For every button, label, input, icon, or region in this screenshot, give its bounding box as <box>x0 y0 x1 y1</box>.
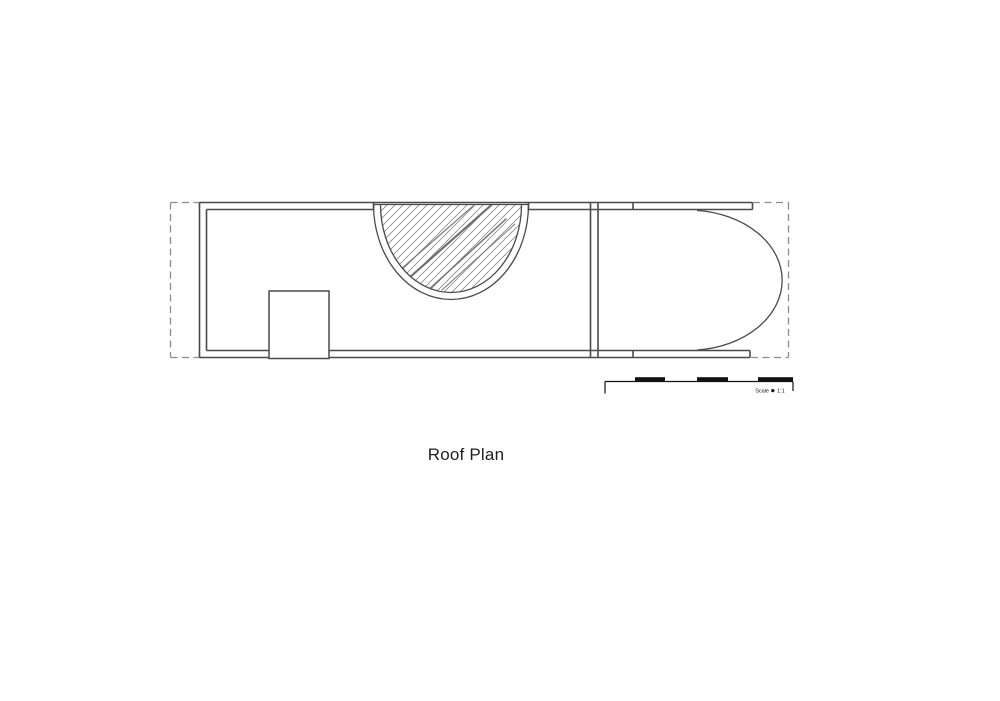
roof-plan-drawing: Scale 1:1 <box>0 0 1000 701</box>
scale-label: Scale <box>755 389 769 395</box>
skylight <box>374 200 529 300</box>
scale-bar-blocks <box>635 377 793 381</box>
roof-plan-canvas: Scale 1:1 Roof Plan <box>0 0 1000 701</box>
scale-ratio: 1:1 <box>777 389 785 395</box>
dot-icon <box>771 389 774 392</box>
scale-bar: Scale 1:1 <box>605 377 793 394</box>
scale-caption: Scale 1:1 <box>755 389 784 395</box>
skylight-hatch-fill <box>381 205 522 293</box>
curved-roof-edge-arc <box>697 211 782 351</box>
drawing-title: Roof Plan <box>366 445 566 465</box>
rooftop-structure-square <box>269 291 329 359</box>
